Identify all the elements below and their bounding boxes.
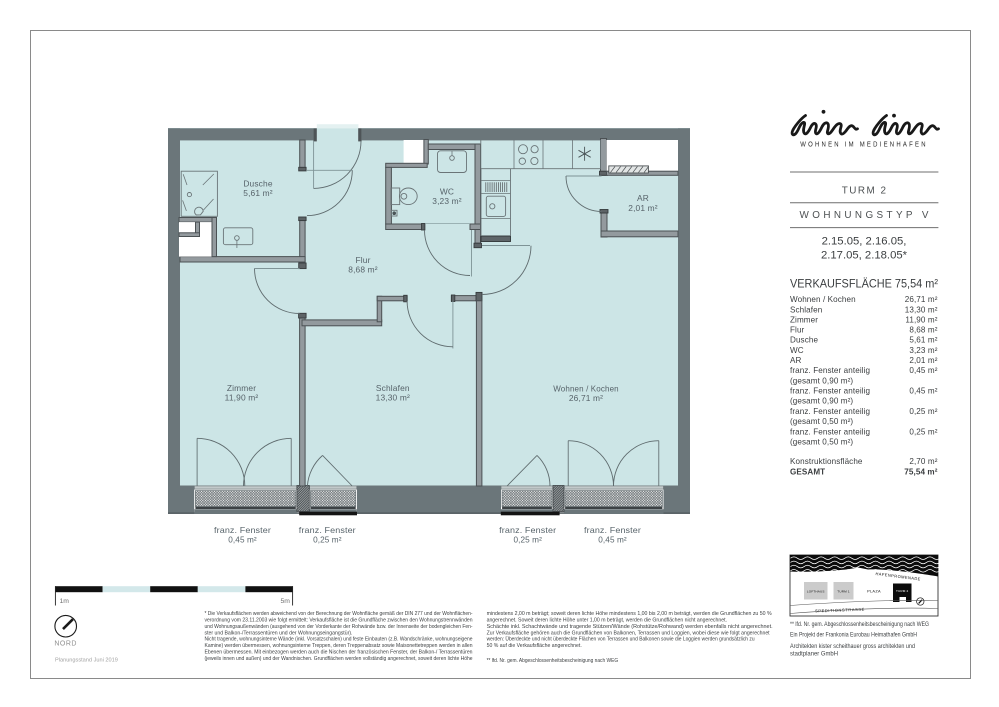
svg-text:NORD: NORD	[54, 640, 77, 647]
svg-text:AR: AR	[637, 193, 649, 203]
svg-text:franz. Fenster anteilig: franz. Fenster anteilig	[790, 427, 870, 436]
svg-text:0,25 m²: 0,25 m²	[909, 407, 937, 416]
svg-text:0,45 m²: 0,45 m²	[909, 387, 937, 396]
svg-text:franz. Fenster anteilig: franz. Fenster anteilig	[790, 387, 870, 396]
svg-text:Konstruktionsfläche: Konstruktionsfläche	[790, 457, 863, 466]
svg-text:0,45 m²: 0,45 m²	[909, 366, 937, 375]
svg-text:** lfd. Nr. gem. Abgeschlossen: ** lfd. Nr. gem. Abgeschlossenheitsbesch…	[790, 622, 929, 628]
svg-text:Kamine) werden übermessen, woh: Kamine) werden übermessen, wohnungsinter…	[205, 643, 473, 649]
svg-text:WC: WC	[440, 186, 454, 196]
svg-text:Ebenen übermessen. Mit einbezo: Ebenen übermessen. Mit einbezogen werden…	[205, 650, 473, 656]
svg-text:Zimmer: Zimmer	[790, 316, 818, 325]
svg-text:mindestens 2,00 m beträgt; sow: mindestens 2,00 m beträgt; soweit deren …	[487, 611, 772, 617]
svg-text:0,25 m²: 0,25 m²	[513, 535, 542, 544]
svg-text:GESAMT: GESAMT	[790, 467, 825, 476]
svg-text:Schlafen: Schlafen	[790, 305, 822, 314]
svg-text:Flur: Flur	[790, 326, 805, 335]
svg-text:0,45 m²: 0,45 m²	[228, 535, 257, 544]
svg-text:Schächte inkl. Schachtwände un: Schächte inkl. Schachtwände und tragende…	[487, 624, 773, 630]
svg-text:stadtplaner GmbH: stadtplaner GmbH	[790, 652, 838, 658]
svg-text:** lfd. Nr. gem. Abgeschlossen: ** lfd. Nr. gem. Abgeschlossenheitsbesch…	[487, 658, 618, 664]
svg-text:2,01 m²: 2,01 m²	[628, 203, 658, 213]
svg-text:Ein Projekt der Frankonia Euro: Ein Projekt der Frankonia Eurobau Heimat…	[790, 632, 917, 638]
svg-text:VERKAUFSFLÄCHE 75,54 m²: VERKAUFSFLÄCHE 75,54 m²	[790, 276, 938, 290]
svg-text:1m: 1m	[60, 598, 70, 605]
svg-text:* Die Verkaufsflächen werden a: * Die Verkaufsflächen werden abweichend …	[205, 611, 473, 617]
svg-text:0,25 m²: 0,25 m²	[313, 535, 342, 544]
svg-text:franz. Fenster: franz. Fenster	[499, 526, 556, 535]
svg-text:2.17.05, 2.18.05*: 2.17.05, 2.18.05*	[821, 249, 908, 261]
svg-text:Flur: Flur	[355, 255, 370, 265]
svg-text:WC: WC	[790, 346, 804, 355]
svg-text:(gesamt 0,90 m²): (gesamt 0,90 m²)	[790, 376, 853, 385]
svg-text:2.15.05, 2.16.05,: 2.15.05, 2.16.05,	[822, 235, 907, 247]
svg-text:(gesamt 0,90 m²): (gesamt 0,90 m²)	[790, 397, 853, 406]
svg-text:2,70 m²: 2,70 m²	[909, 457, 937, 466]
svg-text:3,23 m²: 3,23 m²	[909, 346, 937, 355]
svg-text:AR: AR	[790, 356, 801, 365]
svg-text:Wohnen / Kochen: Wohnen / Kochen	[553, 383, 619, 393]
svg-text:franz. Fenster anteilig: franz. Fenster anteilig	[790, 407, 870, 416]
svg-text:WOHNEN IM MEDIENHAFEN: WOHNEN IM MEDIENHAFEN	[800, 139, 928, 148]
svg-text:verordnung vom 23.11.2003 wie: verordnung vom 23.11.2003 wie folgt ermi…	[205, 617, 473, 623]
svg-text:(gesamt 0,50 m²): (gesamt 0,50 m²)	[790, 438, 853, 447]
svg-text:8,68 m²: 8,68 m²	[909, 326, 937, 335]
svg-text:WOHNUNGSTYP V: WOHNUNGSTYP V	[800, 210, 932, 221]
svg-text:Architekten kister scheithauer: Architekten kister scheithauer gross arc…	[790, 644, 915, 650]
svg-text:5,61 m²: 5,61 m²	[243, 188, 273, 198]
svg-text:und Wohnungsaußenwänden (ausge: und Wohnungsaußenwänden (ausgehend von d…	[205, 624, 473, 630]
svg-text:5m: 5m	[281, 598, 291, 605]
svg-text:Dusche: Dusche	[790, 336, 818, 345]
svg-text:Zimmer: Zimmer	[227, 383, 256, 393]
svg-text:5,61 m²: 5,61 m²	[909, 336, 937, 345]
svg-text:ster und Balkon-/Terrassentüre: ster und Balkon-/Terrassentüren und der …	[205, 630, 353, 636]
svg-text:11,90 m²: 11,90 m²	[905, 316, 937, 325]
svg-text:(jeweils innen und außen) und: (jeweils innen und außen) und der Wandni…	[205, 656, 473, 662]
svg-text:franz. Fenster: franz. Fenster	[214, 526, 271, 535]
svg-text:Zur Verkaufsfläche gehören auc: Zur Verkaufsfläche gehören auch die Grun…	[487, 630, 771, 636]
svg-text:0,25 m²: 0,25 m²	[909, 427, 937, 436]
svg-text:Nicht tragende, wohnungsintern: Nicht tragende, wohnungsinterne Wände (i…	[205, 637, 473, 643]
svg-text:LOFTHAUS: LOFTHAUS	[807, 590, 825, 594]
svg-text:11,90 m²: 11,90 m²	[225, 393, 259, 403]
svg-text:(gesamt 0,50 m²): (gesamt 0,50 m²)	[790, 417, 853, 426]
svg-text:franz. Fenster: franz. Fenster	[584, 526, 641, 535]
svg-text:8,68 m²: 8,68 m²	[348, 265, 378, 275]
svg-text:Wohnen / Kochen: Wohnen / Kochen	[790, 295, 856, 304]
svg-text:3,23 m²: 3,23 m²	[432, 196, 462, 206]
svg-text:franz. Fenster anteilig: franz. Fenster anteilig	[790, 366, 870, 375]
svg-text:75,54 m²: 75,54 m²	[904, 467, 937, 476]
svg-text:TURM 1: TURM 1	[837, 590, 850, 594]
svg-text:werden: Überdeckte und nicht ü: werden: Überdeckte und nicht überdeckte …	[487, 636, 755, 643]
svg-text:26,71 m²: 26,71 m²	[905, 295, 938, 304]
svg-text:Planungsstand Juni 2019: Planungsstand Juni 2019	[55, 658, 118, 664]
svg-text:franz. Fenster: franz. Fenster	[299, 526, 356, 535]
svg-text:Schlafen: Schlafen	[376, 383, 410, 393]
svg-text:Dusche: Dusche	[243, 178, 272, 188]
svg-text:2,01 m²: 2,01 m²	[909, 356, 937, 365]
svg-text:angerechnet. Soweit deren lich: angerechnet. Soweit deren lichte Höhe un…	[487, 617, 727, 623]
svg-text:0,45 m²: 0,45 m²	[598, 535, 627, 544]
svg-text:TURM 2: TURM 2	[896, 589, 909, 593]
svg-text:26,71 m²: 26,71 m²	[569, 393, 603, 403]
svg-text:50 % auf die Verkaufsfläche an: 50 % auf die Verkaufsfläche angerechnet.	[487, 643, 582, 649]
svg-text:13,30 m²: 13,30 m²	[376, 393, 410, 403]
svg-text:TURM 2: TURM 2	[842, 186, 888, 197]
svg-text:13,30 m²: 13,30 m²	[905, 305, 938, 314]
svg-text:PLAZA: PLAZA	[867, 588, 881, 593]
